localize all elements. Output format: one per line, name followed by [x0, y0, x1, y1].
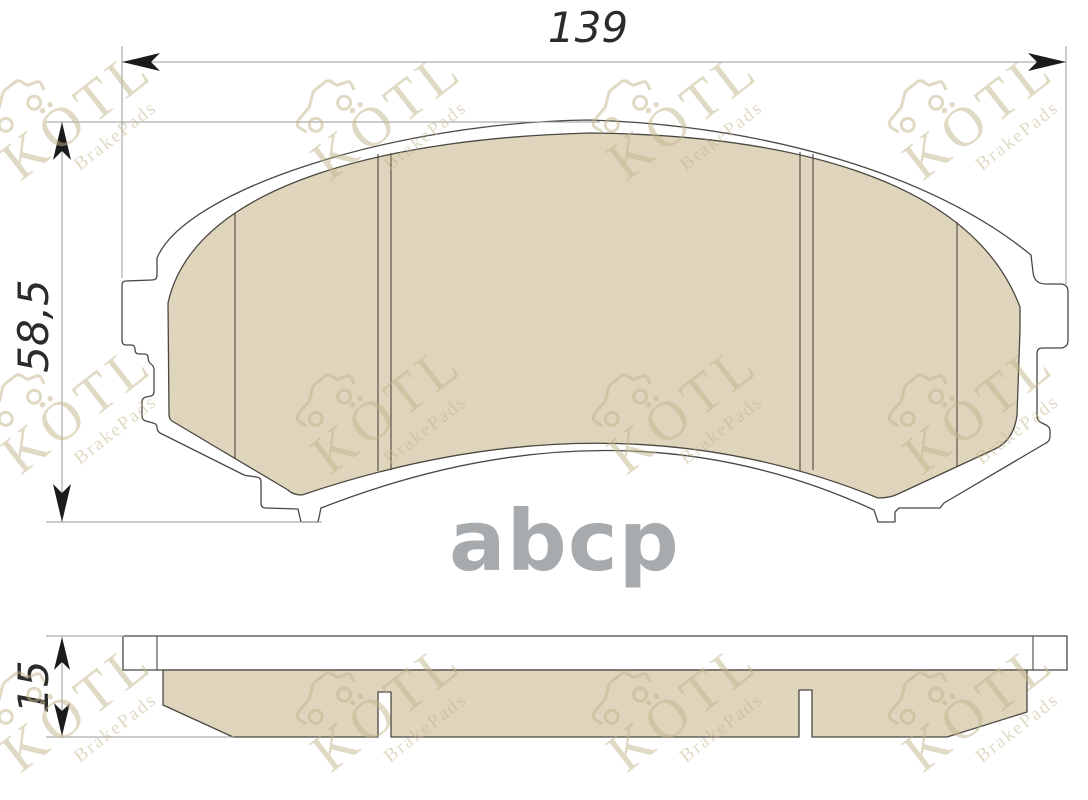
side-view — [123, 636, 1067, 737]
friction-material — [168, 133, 1020, 498]
side-backing-plate — [123, 636, 1067, 670]
technical-drawing: 139 58,5 15 — [0, 0, 1088, 800]
brake-pad-drawing: 139 58,5 15 K — [0, 0, 1088, 800]
dim-height-label: 58,5 — [9, 279, 58, 373]
dim-width-label: 139 — [548, 3, 628, 52]
dim-thickness-label: 15 — [9, 660, 58, 713]
main-view — [122, 120, 1068, 522]
side-friction-material — [163, 670, 1027, 737]
